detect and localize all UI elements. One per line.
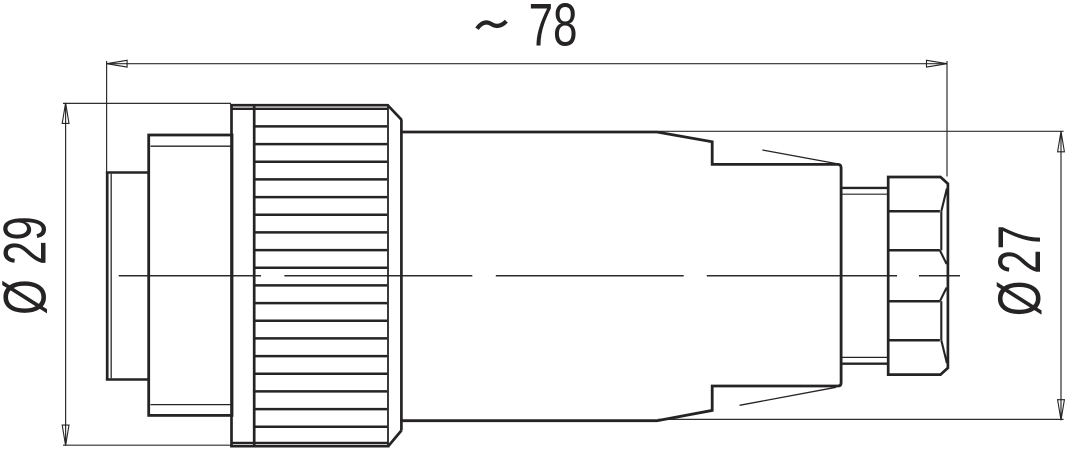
svg-text:27: 27 xyxy=(986,225,1053,274)
svg-text:29: 29 xyxy=(0,216,59,265)
svg-text:78: 78 xyxy=(529,0,578,59)
svg-text:Ø: Ø xyxy=(986,280,1054,316)
svg-text:Ø: Ø xyxy=(0,279,59,315)
